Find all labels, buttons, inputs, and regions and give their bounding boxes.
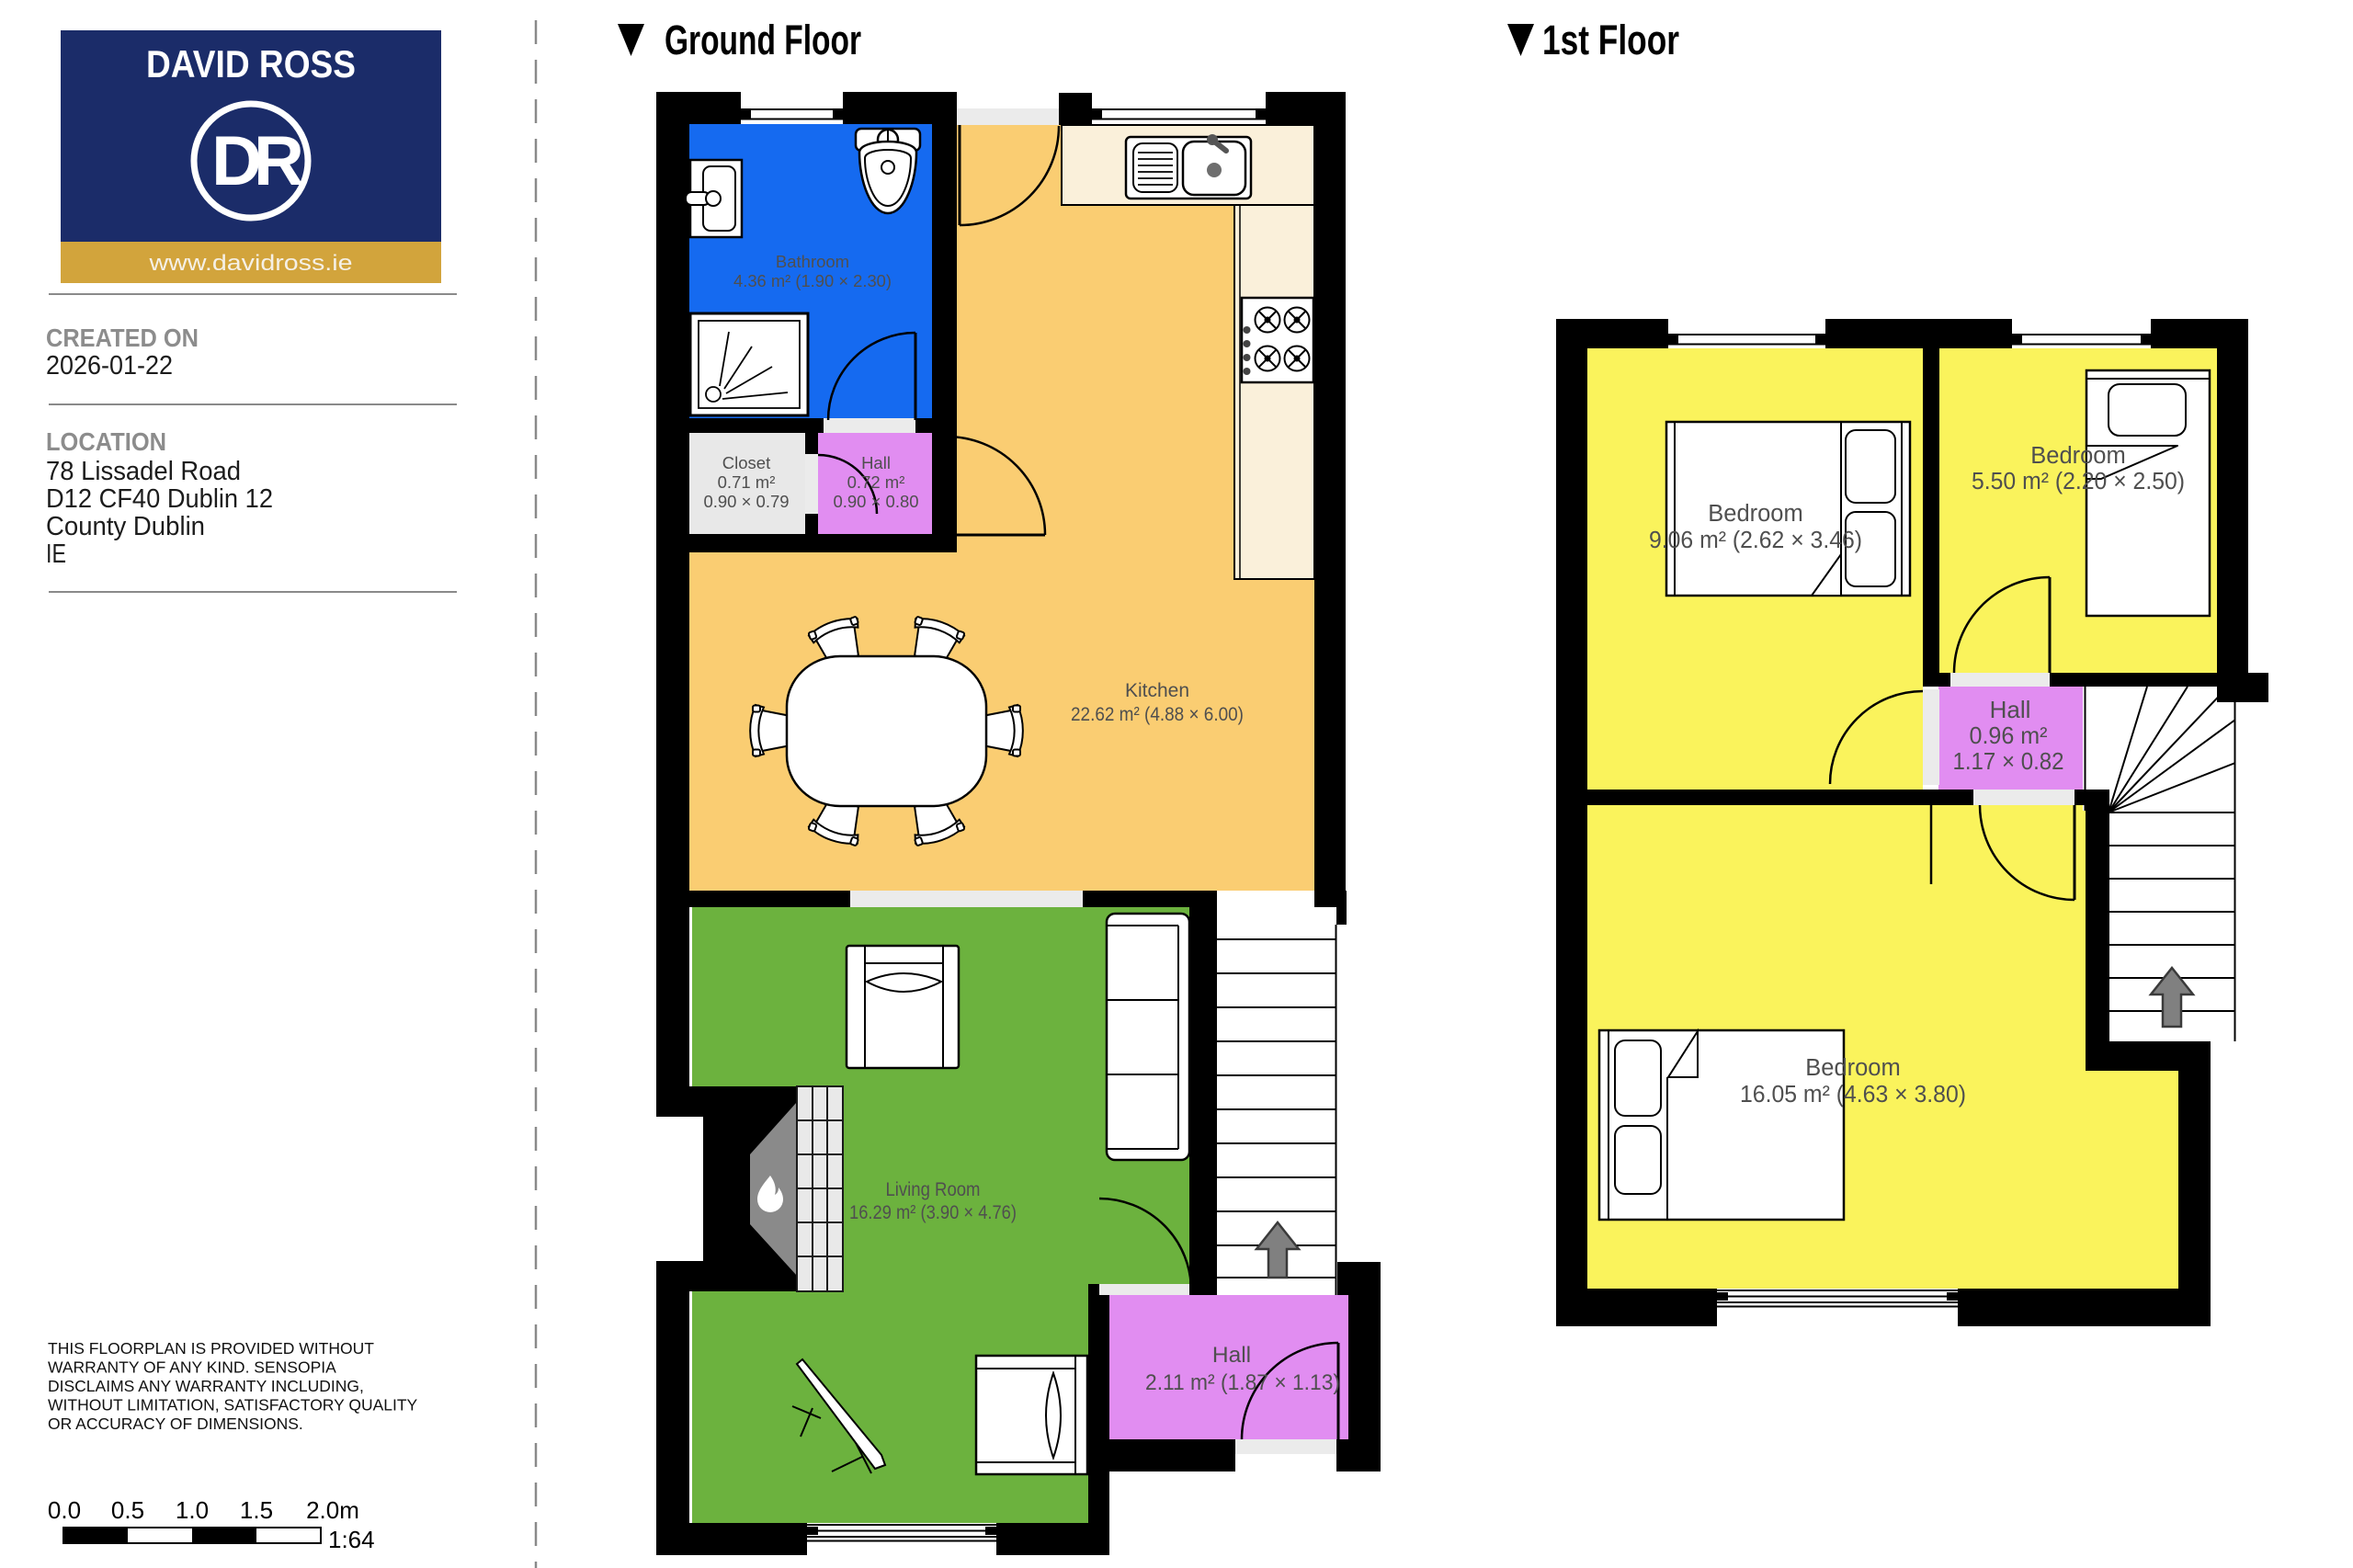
svg-text:0.90 × 0.79: 0.90 × 0.79 [703,492,789,511]
svg-text:DR: DR [211,122,303,200]
svg-text:Kitchen: Kitchen [1125,680,1189,701]
svg-text:9.06 m² (2.62 × 3.46): 9.06 m² (2.62 × 3.46) [1649,528,1862,553]
svg-text:2.11 m² (1.87 × 1.13): 2.11 m² (1.87 × 1.13) [1145,1370,1340,1395]
svg-text:THIS FLOORPLAN IS PROVIDED WIT: THIS FLOORPLAN IS PROVIDED WITHOUT [48,1339,374,1358]
svg-text:1.0: 1.0 [176,1496,209,1524]
svg-text:0.72 m²: 0.72 m² [847,472,905,492]
svg-text:1.5: 1.5 [240,1496,273,1524]
svg-text:1.17 × 0.82: 1.17 × 0.82 [1953,747,2064,775]
svg-text:D12 CF40 Dublin 12: D12 CF40 Dublin 12 [46,484,273,514]
svg-text:CREATED ON: CREATED ON [46,324,199,352]
svg-text:WARRANTY OF ANY KIND. SENSOPIA: WARRANTY OF ANY KIND. SENSOPIA [48,1358,336,1377]
svg-text:DAVID ROSS: DAVID ROSS [146,42,356,85]
svg-text:4.36 m² (1.90 × 2.30): 4.36 m² (1.90 × 2.30) [733,271,892,290]
svg-text:Hall: Hall [861,453,891,472]
svg-text:Ground Floor: Ground Floor [665,17,861,63]
svg-text:Closet: Closet [722,453,770,472]
svg-text:1st Floor: 1st Floor [1542,17,1679,63]
svg-text:www.davidross.ie: www.davidross.ie [148,251,352,276]
svg-text:Living Room: Living Room [886,1179,981,1200]
svg-text:IE: IE [46,540,66,569]
svg-text:2026-01-22: 2026-01-22 [46,351,173,381]
svg-text:Bedroom: Bedroom [1805,1055,1900,1081]
svg-text:2.0m: 2.0m [306,1496,359,1524]
svg-text:Hall: Hall [1990,696,2031,723]
svg-text:22.62 m² (4.88 × 6.00): 22.62 m² (4.88 × 6.00) [1071,704,1244,725]
svg-text:Bathroom: Bathroom [776,252,849,271]
svg-text:16.05 m² (4.63 × 3.80): 16.05 m² (4.63 × 3.80) [1740,1082,1966,1108]
svg-text:0.96 m²: 0.96 m² [1970,722,2048,749]
svg-text:1:64: 1:64 [328,1526,375,1553]
svg-text:County Dublin: County Dublin [46,512,205,541]
svg-text:OR ACCURACY OF DIMENSIONS.: OR ACCURACY OF DIMENSIONS. [48,1415,303,1433]
svg-text:78 Lissadel Road: 78 Lissadel Road [46,457,241,486]
svg-text:0.90 × 0.80: 0.90 × 0.80 [833,492,918,511]
svg-text:0.0: 0.0 [48,1496,81,1524]
svg-text:16.29 m² (3.90 × 4.76): 16.29 m² (3.90 × 4.76) [849,1202,1017,1223]
svg-text:Bedroom: Bedroom [2030,443,2125,469]
svg-text:Bedroom: Bedroom [1708,501,1802,527]
svg-text:0.5: 0.5 [111,1496,144,1524]
svg-text:5.50 m² (2.20 × 2.50): 5.50 m² (2.20 × 2.50) [1972,469,2185,494]
svg-text:DISCLAIMS ANY WARRANTY INCLUDI: DISCLAIMS ANY WARRANTY INCLUDING, [48,1377,364,1395]
svg-text:0.71 m²: 0.71 m² [718,472,776,492]
svg-text:Hall: Hall [1212,1343,1251,1368]
svg-text:WITHOUT LIMITATION, SATISFACTO: WITHOUT LIMITATION, SATISFACTORY QUALITY [48,1396,418,1415]
svg-text:LOCATION: LOCATION [46,427,166,456]
